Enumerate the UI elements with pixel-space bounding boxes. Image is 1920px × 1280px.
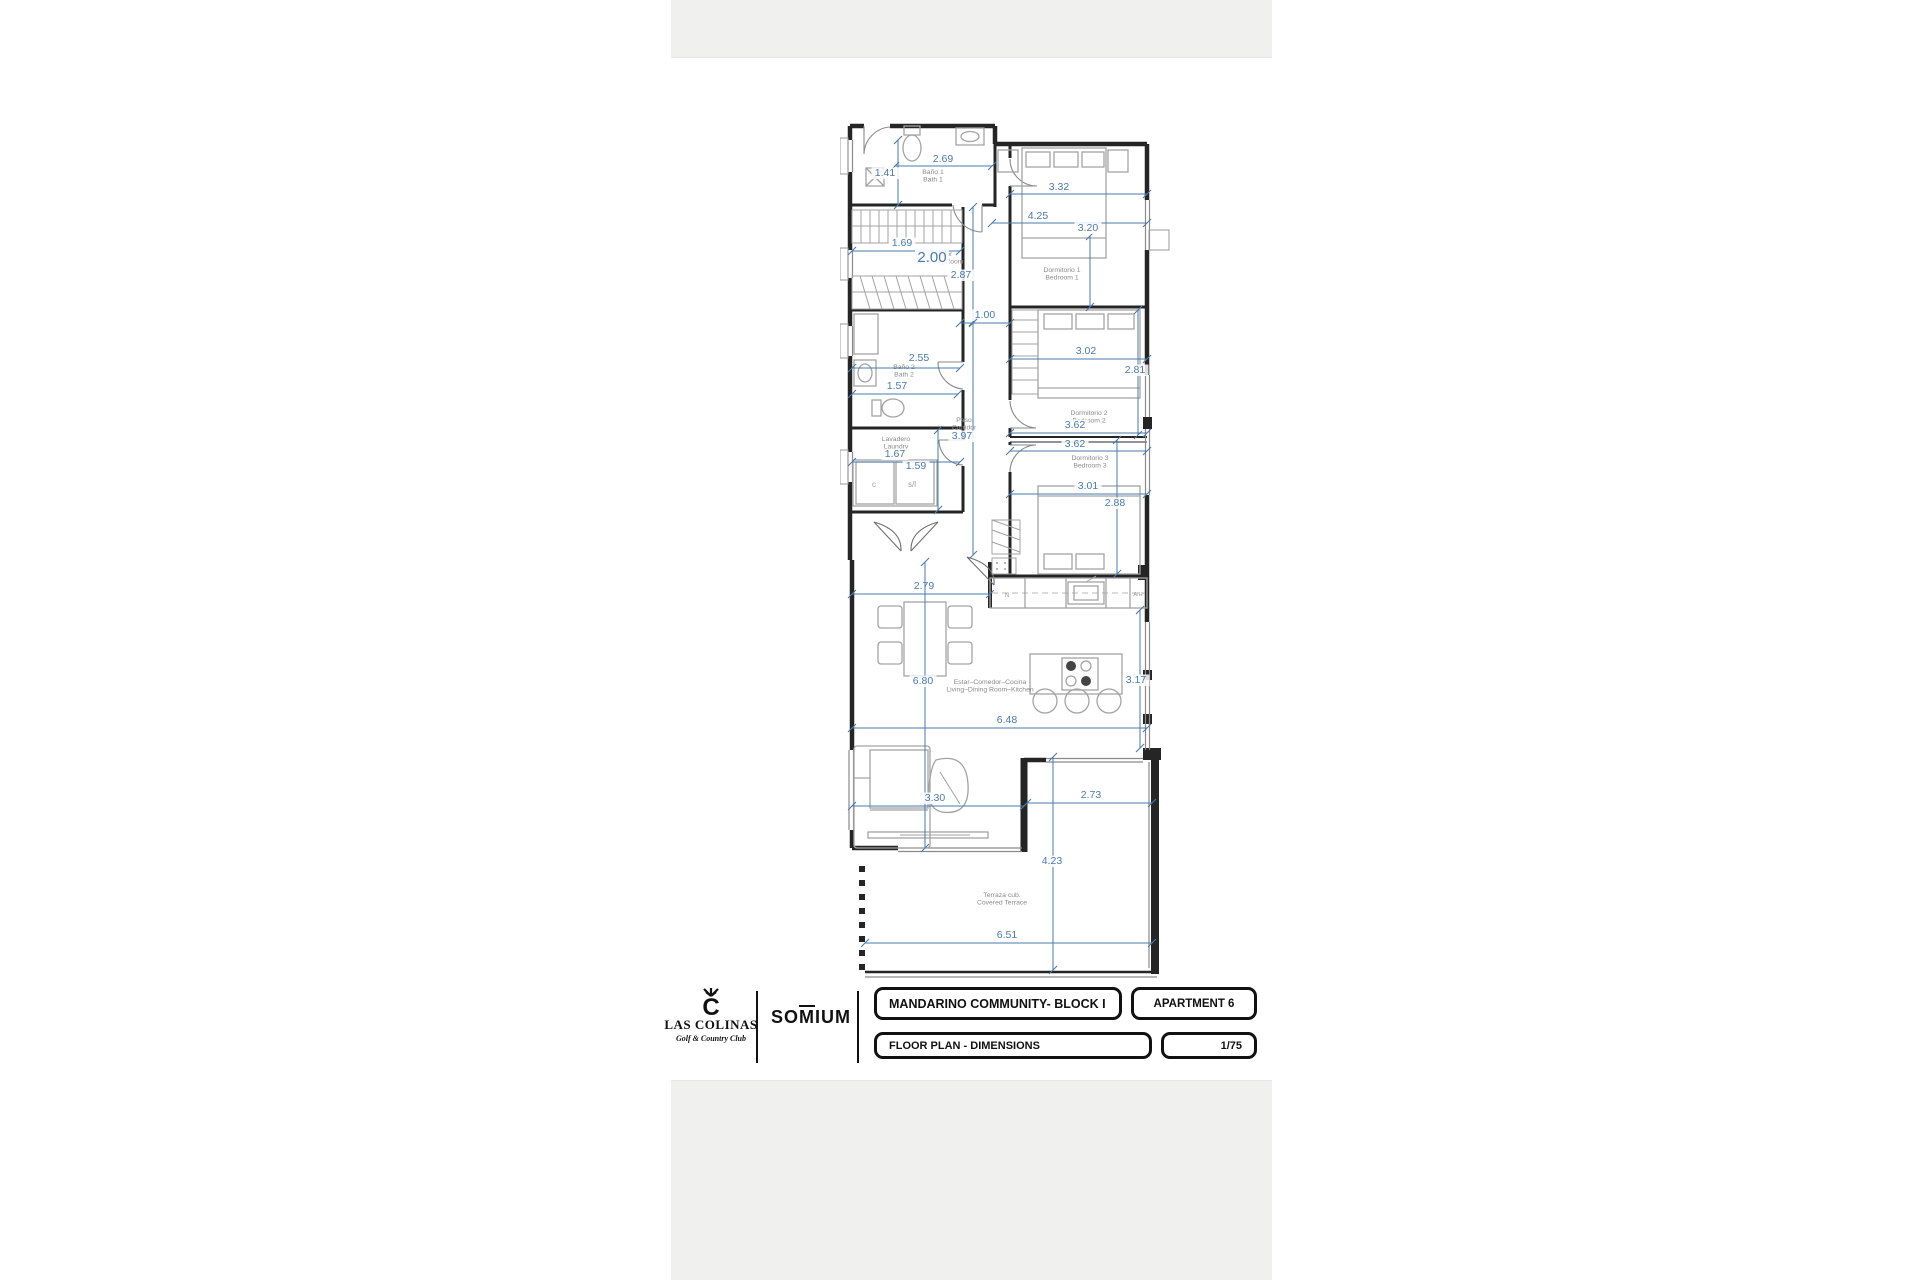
dimension-label: 4.25	[1028, 210, 1049, 222]
title-block: C LAS COLINAS Golf & Country Club SOMIUM…	[671, 985, 1272, 1077]
plan-annotation: A/H	[1133, 592, 1142, 598]
drawing-title-box: FLOOR PLAN - DIMENSIONS	[874, 1032, 1152, 1059]
dimension-label: 3.02	[1076, 345, 1097, 357]
dimension-label: 1.57	[887, 380, 908, 392]
dimension-label: 2.87	[951, 269, 972, 281]
floor-plan-drawing: Baño 1Bath 1VestidorDressing RoomDormito…	[840, 110, 1185, 1000]
kitchen-island	[1030, 654, 1122, 713]
dimension-label: 4.23	[1042, 855, 1063, 867]
dimension-label: 6.80	[913, 675, 934, 687]
room-label-living-kitchen: Estar–Comedor–CocinaLiving–Dining Room–K…	[946, 679, 1033, 694]
svg-text:C: C	[702, 994, 719, 1017]
brand-name: LAS COLINAS	[663, 1017, 759, 1033]
dimension-label: 2.88	[1105, 497, 1126, 509]
somium-logo-text: SO	[771, 1007, 799, 1027]
dimension-label: 6.51	[997, 929, 1018, 941]
dimension-label: 2.55	[909, 352, 930, 364]
room-label-terrace: Terraza cub.Covered Terrace	[977, 892, 1027, 907]
dimension-label: 2.00	[917, 249, 946, 266]
sofa-set	[854, 746, 988, 848]
room-label-bath-1: Baño 1Bath 1	[922, 169, 944, 184]
dimension-label: 1.67	[885, 448, 906, 460]
somium-logo-macron: M	[799, 1005, 815, 1027]
dimension-label: 3.20	[1078, 222, 1099, 234]
dimension-label: 2.79	[914, 580, 935, 592]
room-label-bedroom-3: Dormitorio 3Bedroom 3	[1071, 455, 1108, 470]
project-title-box: MANDARINO COMMUNITY- BLOCK I	[874, 987, 1122, 1020]
apartment-box: APARTMENT 6	[1131, 987, 1257, 1020]
dimension-label: 1.69	[892, 237, 913, 249]
somium-logo: SOMIUM	[767, 1007, 855, 1028]
page-gutter-top	[671, 0, 1272, 58]
scale-value: 1/75	[1221, 1040, 1242, 1052]
dimension-label: 2.69	[933, 153, 954, 165]
dimension-label: 3.30	[925, 792, 946, 804]
room-label-bath-2: Baño 2Bath 2	[893, 364, 915, 379]
dimension-label: 3.62	[1065, 419, 1086, 431]
dimension-label: 1.59	[906, 460, 927, 472]
screenshot-canvas: Baño 1Bath 1VestidorDressing RoomDormito…	[0, 0, 1920, 1280]
drawing-title: FLOOR PLAN - DIMENSIONS	[889, 1040, 1040, 1052]
kitchen-counter	[990, 576, 1147, 608]
las-colinas-logo: C LAS COLINAS Golf & Country Club	[663, 987, 759, 1043]
dimension-label: 3.17	[1126, 674, 1147, 686]
apartment-label: APARTMENT 6	[1154, 998, 1235, 1010]
dimension-label: 1.00	[975, 309, 996, 321]
floor-plan-svg: Baño 1Bath 1VestidorDressing RoomDormito…	[840, 110, 1185, 1000]
title-block-divider	[756, 991, 758, 1063]
dimension-label: 6.48	[997, 714, 1018, 726]
dimension-label: 1.41	[875, 167, 896, 179]
room-labels-layer: Baño 1Bath 1VestidorDressing RoomDormito…	[882, 169, 1109, 907]
brand-tagline: Golf & Country Club	[663, 1034, 759, 1043]
plan-annotation: s/l	[908, 480, 916, 489]
room-label-bedroom-1: Dormitorio 1Bedroom 1	[1043, 267, 1080, 282]
title-block-divider-2	[857, 991, 859, 1063]
dimension-label: 3.62	[1065, 438, 1086, 450]
page-gutter-bottom	[671, 1080, 1272, 1280]
plan-annotation: N	[1005, 593, 1009, 599]
furniture-layer	[852, 126, 1147, 848]
somium-logo-text-2: IUM	[815, 1007, 851, 1027]
plan-annotation: c	[872, 480, 876, 489]
project-title: MANDARINO COMMUNITY- BLOCK I	[889, 997, 1106, 1011]
dimension-label: 3.32	[1049, 181, 1070, 193]
dimension-label: 2.73	[1081, 789, 1102, 801]
scale-box: 1/75	[1161, 1032, 1257, 1059]
las-colinas-logo-icon: C	[663, 987, 759, 1017]
dimension-label: 3.01	[1078, 480, 1099, 492]
document-page: Baño 1Bath 1VestidorDressing RoomDormito…	[671, 0, 1272, 1280]
walls-layer	[850, 126, 1159, 974]
dimension-label: 3.97	[952, 430, 973, 442]
dimension-label: 2.81	[1125, 364, 1146, 376]
